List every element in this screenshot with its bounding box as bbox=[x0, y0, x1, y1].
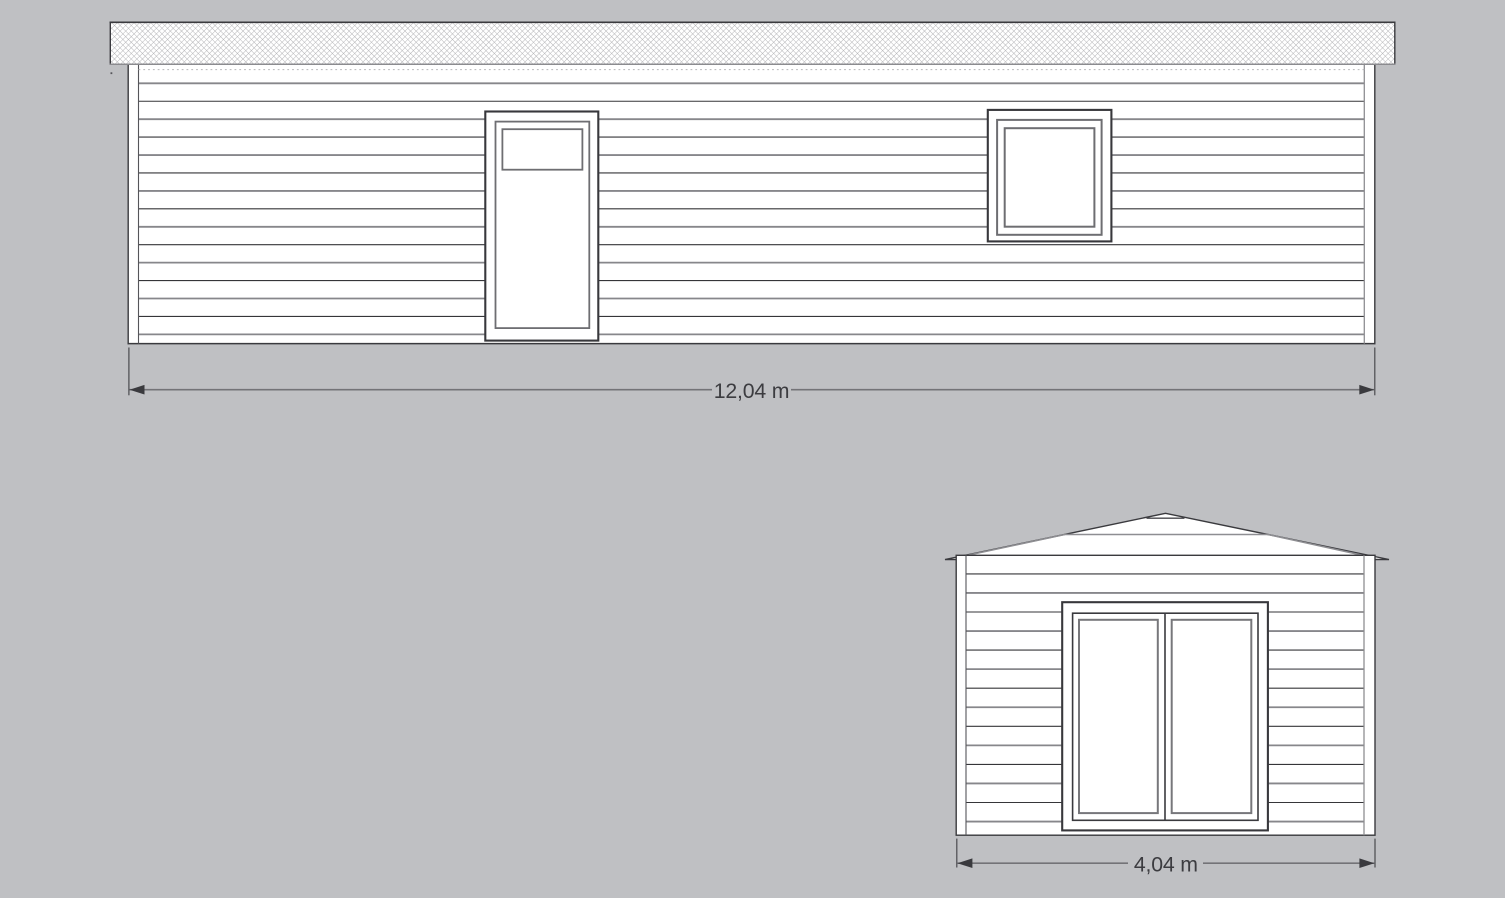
svg-text:12,04 m: 12,04 m bbox=[714, 379, 790, 403]
svg-text:4,04 m: 4,04 m bbox=[1134, 852, 1198, 876]
